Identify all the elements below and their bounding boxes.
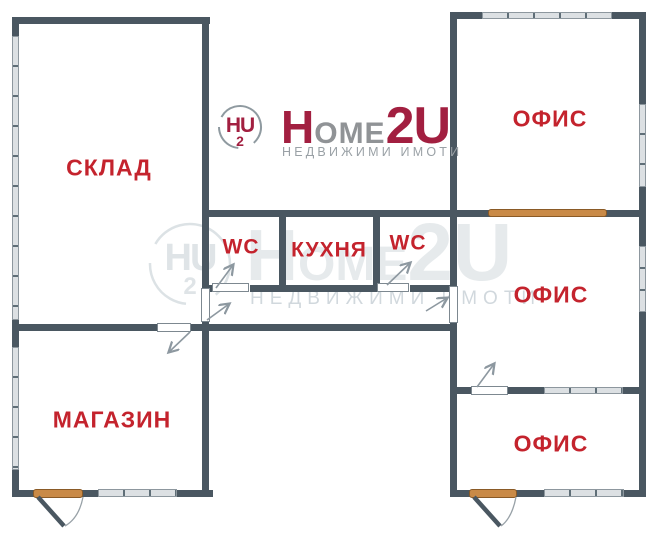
wall-segment <box>14 17 210 24</box>
window <box>12 36 19 320</box>
room-label-wc-right: WC <box>390 233 427 254</box>
watermark-icon-sub: 2 <box>183 273 196 300</box>
entrance-door-sill <box>33 489 83 498</box>
wall-segment <box>250 285 377 292</box>
door-swing-annotations <box>0 0 652 541</box>
door-leaf <box>157 323 191 332</box>
brand-logo-icon: HU 2 <box>214 99 268 155</box>
wall-segment <box>14 324 157 331</box>
entrance-door-arc <box>65 497 83 526</box>
brand-wordmark-h: H <box>281 104 314 150</box>
wall-segment <box>639 187 646 246</box>
door-swing-arrow <box>477 364 494 387</box>
window <box>482 12 612 19</box>
window <box>98 489 177 497</box>
watermark-logo-icon: HU 2 <box>140 212 250 322</box>
watermark-icon-arc <box>140 212 245 319</box>
room-label-office-middle: ОФИС <box>514 284 589 307</box>
door-leaf <box>201 288 210 322</box>
door-swing-arrow <box>207 304 229 320</box>
window <box>544 387 623 394</box>
wall-segment <box>639 312 646 497</box>
wall-segment <box>639 12 646 104</box>
window <box>544 489 624 497</box>
entrance-door-leaf <box>38 497 64 526</box>
wall-segment <box>12 320 19 347</box>
window <box>639 104 646 187</box>
opening-sill <box>488 209 607 217</box>
room-label-sklad: СКЛАД <box>66 157 152 180</box>
entrance-door-leaf <box>474 497 500 526</box>
wall-segment <box>12 470 19 497</box>
room-label-office-bottom: ОФИС <box>514 433 589 456</box>
entrance-door-arc <box>501 497 516 526</box>
wall-segment <box>202 321 209 497</box>
door-leaf <box>212 283 249 292</box>
floor-plan: HU 2 HОМЕ2U НЕДВИЖИМИ ИМОТИ СКЛАД МАГАЗИ… <box>0 0 652 541</box>
wall-segment <box>279 210 286 292</box>
wall-segment <box>202 17 209 289</box>
wall-segment <box>12 17 19 36</box>
room-label-kitchen: КУХНЯ <box>291 240 367 261</box>
entrance-door-sill <box>469 489 517 498</box>
window <box>639 246 646 312</box>
room-label-wc-left: WC <box>223 237 260 258</box>
door-leaf <box>449 286 458 323</box>
window <box>12 347 19 470</box>
door-swing-arrow <box>426 298 447 311</box>
wall-segment <box>450 323 457 497</box>
wall-segment <box>373 210 380 292</box>
door-leaf <box>377 283 409 292</box>
door-leaf <box>471 386 508 395</box>
room-label-office-top: ОФИС <box>513 108 588 131</box>
room-label-magazin: МАГАЗИН <box>53 409 172 432</box>
brand-tagline: НЕДВИЖИМИ ИМОТИ <box>282 145 462 159</box>
brand-icon-sub: 2 <box>236 133 244 149</box>
wall-segment <box>191 324 455 331</box>
door-swing-arrow <box>169 332 190 352</box>
door-swing-arrow <box>387 263 410 285</box>
